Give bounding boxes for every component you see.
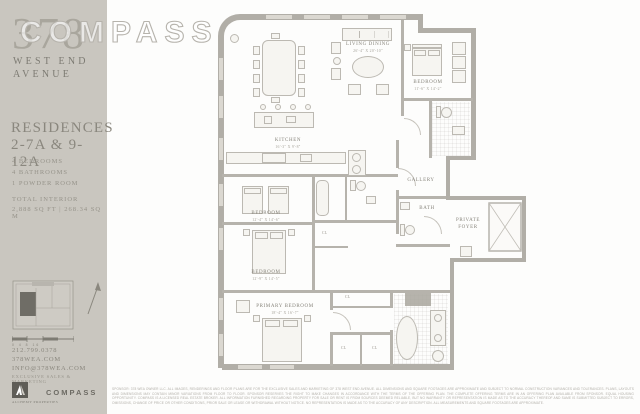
nightstand	[288, 229, 295, 236]
stool	[290, 104, 296, 110]
wall-step	[446, 156, 476, 160]
wall-foyer-top	[446, 196, 526, 200]
kitchen-island	[254, 112, 314, 128]
wall-interior	[360, 332, 362, 366]
wall-interior	[345, 174, 347, 220]
toilet	[356, 181, 366, 191]
window	[219, 228, 223, 250]
elevator-shaft	[488, 202, 522, 252]
wall-interior	[312, 220, 396, 223]
wall-corner-curve	[218, 14, 258, 54]
bathtub	[316, 180, 329, 216]
room-label-living-dining: LIVING DINING	[346, 42, 390, 47]
room-dims-bedroom-4: 12'-9" X 14'-5"	[236, 277, 296, 282]
sink	[400, 202, 410, 210]
stool	[275, 104, 281, 110]
closet-label: CL	[372, 346, 378, 350]
nightstand	[253, 315, 260, 322]
column	[230, 34, 239, 43]
wall-top-right	[418, 28, 476, 33]
window	[266, 15, 292, 19]
pillow	[414, 50, 426, 56]
sink	[452, 126, 465, 135]
wall-gallery-east	[446, 156, 450, 200]
room-label-kitchen: KITCHEN	[275, 138, 301, 143]
legal-disclaimer: SPONSOR: 378 WEA OWNER LLC. ALL IMAGES, …	[112, 387, 634, 406]
room-dims-bedroom-3: 12'-4" X 14'-6"	[236, 218, 296, 223]
door-arc	[333, 312, 351, 330]
closet-label: CL	[341, 346, 347, 350]
wall-interior	[401, 20, 404, 116]
dining-table	[262, 40, 296, 96]
kitchen-sink	[300, 154, 312, 162]
window	[304, 15, 330, 19]
toilet	[405, 225, 415, 235]
dining-chair	[298, 60, 305, 69]
room-dims-living-dining: 26'-4" X 20'-10"	[338, 49, 398, 54]
window	[270, 365, 294, 369]
wall-interior	[390, 290, 393, 308]
room-label-primary-bedroom: PRIMARY BEDROOM	[256, 304, 314, 309]
closet-label: CL	[322, 231, 328, 235]
window	[219, 184, 223, 206]
island-cooktop	[286, 116, 296, 123]
window	[342, 15, 368, 19]
dining-chair	[253, 74, 260, 83]
room-label-bedroom-2: BEDROOM	[413, 80, 442, 85]
stool	[260, 104, 266, 110]
kitchen-counter	[226, 152, 346, 164]
floorplan-flyer-page: 378 WEST END AVENUE RESIDENCES 2-7A & 9-…	[0, 0, 640, 414]
wall-foyer-bottom	[450, 258, 526, 262]
armchair	[376, 84, 389, 95]
dining-chair	[253, 46, 260, 55]
closet-label: CL	[345, 295, 351, 299]
pillow	[244, 188, 261, 194]
door-arc	[404, 118, 421, 135]
pillow	[270, 188, 287, 194]
wall-right-lower	[450, 258, 454, 368]
room-dims-primary-bedroom: 18'-4" X 16'-7"	[245, 311, 325, 316]
washer-drum	[352, 153, 361, 162]
wall-interior	[330, 306, 390, 308]
nightstand	[304, 315, 311, 322]
window	[219, 138, 223, 160]
room-label-bath: BATH	[419, 206, 434, 211]
room-label-gallery: GALLERY	[407, 178, 434, 183]
wall-interior	[396, 244, 450, 247]
range	[262, 153, 286, 163]
dryer-drum	[352, 165, 361, 174]
wall-interior	[330, 334, 333, 366]
window	[219, 58, 223, 80]
pillow	[270, 232, 283, 239]
closet-unit	[452, 70, 466, 83]
foyer-closet	[460, 246, 472, 257]
wall-interior	[396, 196, 446, 199]
wall-interior	[222, 222, 312, 225]
room-label-bedroom-3: BEDROOM	[251, 211, 280, 216]
room-label-bedroom-4: BEDROOM	[251, 270, 280, 275]
closet-unit	[452, 56, 466, 69]
wall-foyer-right	[522, 196, 526, 262]
dining-chair	[253, 60, 260, 69]
wall-interior	[390, 330, 393, 366]
sofa	[342, 28, 392, 41]
door-arc	[424, 216, 442, 234]
pillow	[255, 232, 268, 239]
dining-chair	[253, 88, 260, 97]
room-dims-bedroom-2: 11'-6" X 14'-2"	[404, 87, 452, 92]
toilet	[432, 350, 444, 362]
dining-chair	[298, 74, 305, 83]
armchair	[348, 84, 361, 95]
room-label-private-foyer: PRIVATE FOYER	[456, 218, 480, 230]
dining-chair	[298, 46, 305, 55]
dining-chair	[298, 88, 305, 97]
toilet	[441, 107, 452, 118]
compass-watermark: COMPASS	[20, 16, 218, 50]
window	[219, 298, 223, 320]
armchair	[331, 68, 341, 80]
nightstand	[243, 229, 250, 236]
side-table	[333, 57, 341, 65]
dining-chair	[271, 33, 280, 39]
window	[219, 334, 223, 356]
freestanding-tub	[396, 316, 418, 360]
wall-interior	[312, 246, 348, 248]
window	[238, 365, 262, 369]
closet-unit	[452, 42, 466, 55]
pillow	[283, 320, 298, 327]
wall-interior	[222, 174, 398, 177]
wall-interior	[312, 174, 315, 292]
sink	[366, 196, 376, 204]
wall-interior	[401, 98, 473, 101]
stool	[305, 104, 311, 110]
window	[219, 96, 223, 118]
floor-plan: CL	[0, 0, 640, 414]
coffee-table	[352, 56, 384, 78]
wall-right-upper	[471, 28, 476, 160]
room-dims-kitchen: 16'-3" X 9'-8"	[258, 145, 318, 150]
pillow	[265, 320, 280, 327]
wall-interior	[396, 140, 399, 168]
island-sink	[264, 116, 272, 124]
pillow	[428, 50, 440, 56]
vanity-sink	[434, 334, 442, 342]
dining-chair	[271, 97, 280, 103]
nightstand	[404, 44, 411, 51]
vanity-sink	[434, 314, 442, 322]
window	[380, 15, 406, 19]
